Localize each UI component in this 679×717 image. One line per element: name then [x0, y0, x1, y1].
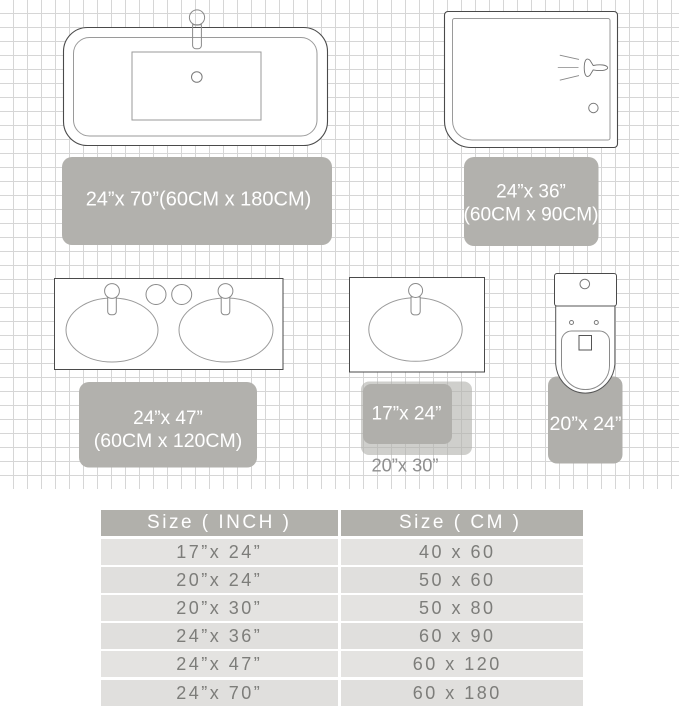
svg-text:24”x 70”(60CM x 180CM): 24”x 70”(60CM x 180CM): [86, 188, 312, 210]
svg-text:20”x 24”: 20”x 24”: [550, 414, 622, 435]
svg-text:(60CM x 120CM): (60CM x 120CM): [94, 430, 242, 452]
svg-text:24”x 36”: 24”x 36”: [496, 182, 566, 203]
svg-text:17”x 24”: 17”x 24”: [372, 403, 442, 424]
svg-text:24”x 47”: 24”x 47”: [133, 408, 203, 429]
svg-text:20”x 30”: 20”x 30”: [371, 454, 438, 475]
svg-text:(60CM x 90CM): (60CM x 90CM): [464, 204, 599, 226]
